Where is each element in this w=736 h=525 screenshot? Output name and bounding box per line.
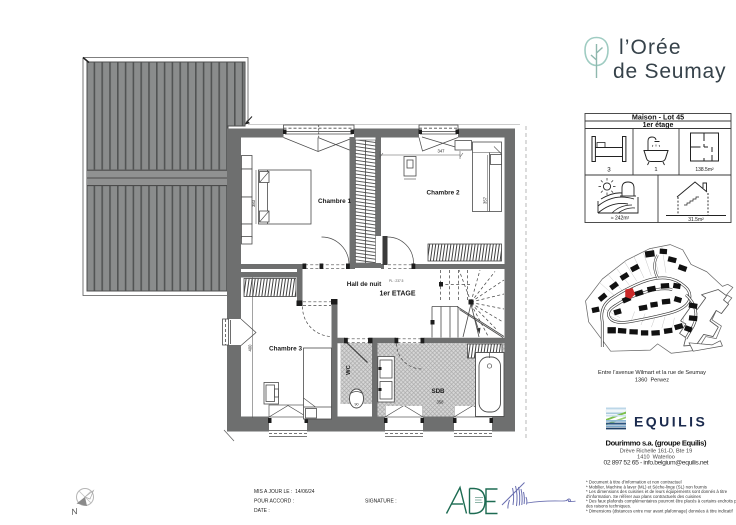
- svg-text:02 897 52 65 - info.belgium@eq: 02 897 52 65 - info.belgium@equilis.net: [604, 460, 709, 467]
- svg-text:MIS A JOUR LE : 14/06/24: MIS A JOUR LE : 14/06/24: [254, 489, 315, 495]
- svg-text:Dourimmo s.a. (groupe Equilis): Dourimmo s.a. (groupe Equilis): [606, 439, 707, 448]
- svg-text:138.5m²: 138.5m²: [695, 167, 714, 173]
- svg-text:DATE :: DATE :: [254, 508, 270, 514]
- svg-text:347: 347: [438, 149, 446, 154]
- svg-text:Hall de nuit: Hall de nuit: [347, 281, 382, 288]
- svg-text:1360 Perwez: 1360 Perwez: [635, 378, 669, 384]
- svg-text:≈ 242m²: ≈ 242m²: [611, 216, 630, 222]
- svg-text:POUR ACCORD :: POUR ACCORD :: [254, 499, 294, 505]
- svg-text:357: 357: [483, 196, 488, 204]
- svg-text:400: 400: [248, 344, 253, 352]
- svg-text:WC: WC: [346, 364, 352, 374]
- svg-text:Maison - Lot 45: Maison - Lot 45: [632, 113, 684, 122]
- svg-text:Chambre 2: Chambre 2: [426, 190, 459, 197]
- svg-text:SIGNATURE :: SIGNATURE :: [365, 499, 397, 505]
- svg-text:1er étage: 1er étage: [643, 122, 674, 129]
- svg-text:31.5m²: 31.5m²: [688, 217, 704, 223]
- svg-text:3: 3: [607, 167, 611, 174]
- svg-text:358: 358: [437, 400, 445, 405]
- svg-text:383: 383: [251, 199, 256, 207]
- svg-text:PL : 237.5: PL : 237.5: [389, 279, 404, 283]
- svg-text:90: 90: [355, 403, 359, 407]
- svg-text:Chambre 3: Chambre 3: [269, 346, 302, 353]
- svg-text:de Seumay: de Seumay: [613, 60, 726, 83]
- svg-text:* Dimensions (distances entre: * Dimensions (distances entre mur avant …: [586, 508, 733, 513]
- svg-text:Entre l’avenue Wilmart et la r: Entre l’avenue Wilmart et la rue de Seum…: [598, 370, 706, 376]
- svg-text:1er ETAGE: 1er ETAGE: [379, 291, 415, 298]
- svg-text:1: 1: [654, 167, 657, 173]
- svg-text:Chambre 1: Chambre 1: [318, 198, 351, 205]
- svg-text:l’Orée: l’Orée: [619, 36, 681, 59]
- svg-text:SDB: SDB: [431, 388, 445, 395]
